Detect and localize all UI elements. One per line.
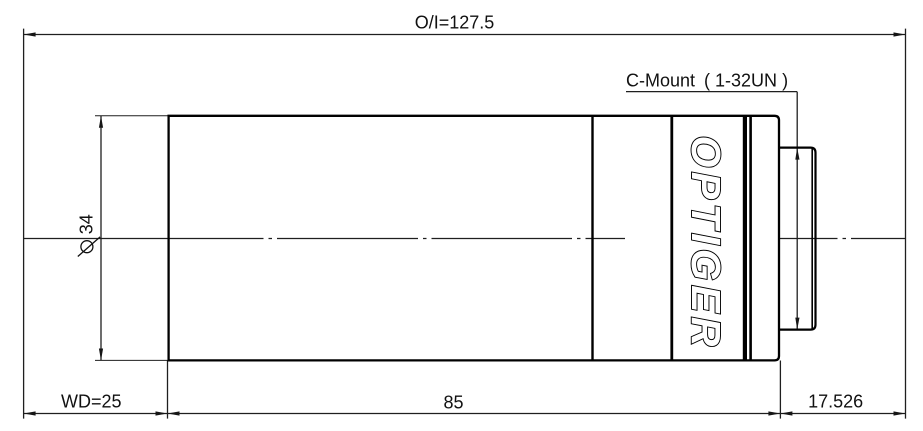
svg-text:O/I=127.5: O/I=127.5 bbox=[415, 12, 495, 32]
svg-text:34: 34 bbox=[76, 214, 96, 234]
svg-text:17.526: 17.526 bbox=[808, 391, 863, 411]
svg-text:C-Mount(1-32UN): C-Mount(1-32UN) bbox=[626, 71, 788, 91]
svg-text:OPTIGER: OPTIGER bbox=[683, 136, 729, 351]
svg-text:85: 85 bbox=[443, 392, 463, 412]
svg-text:WD=25: WD=25 bbox=[61, 391, 122, 411]
